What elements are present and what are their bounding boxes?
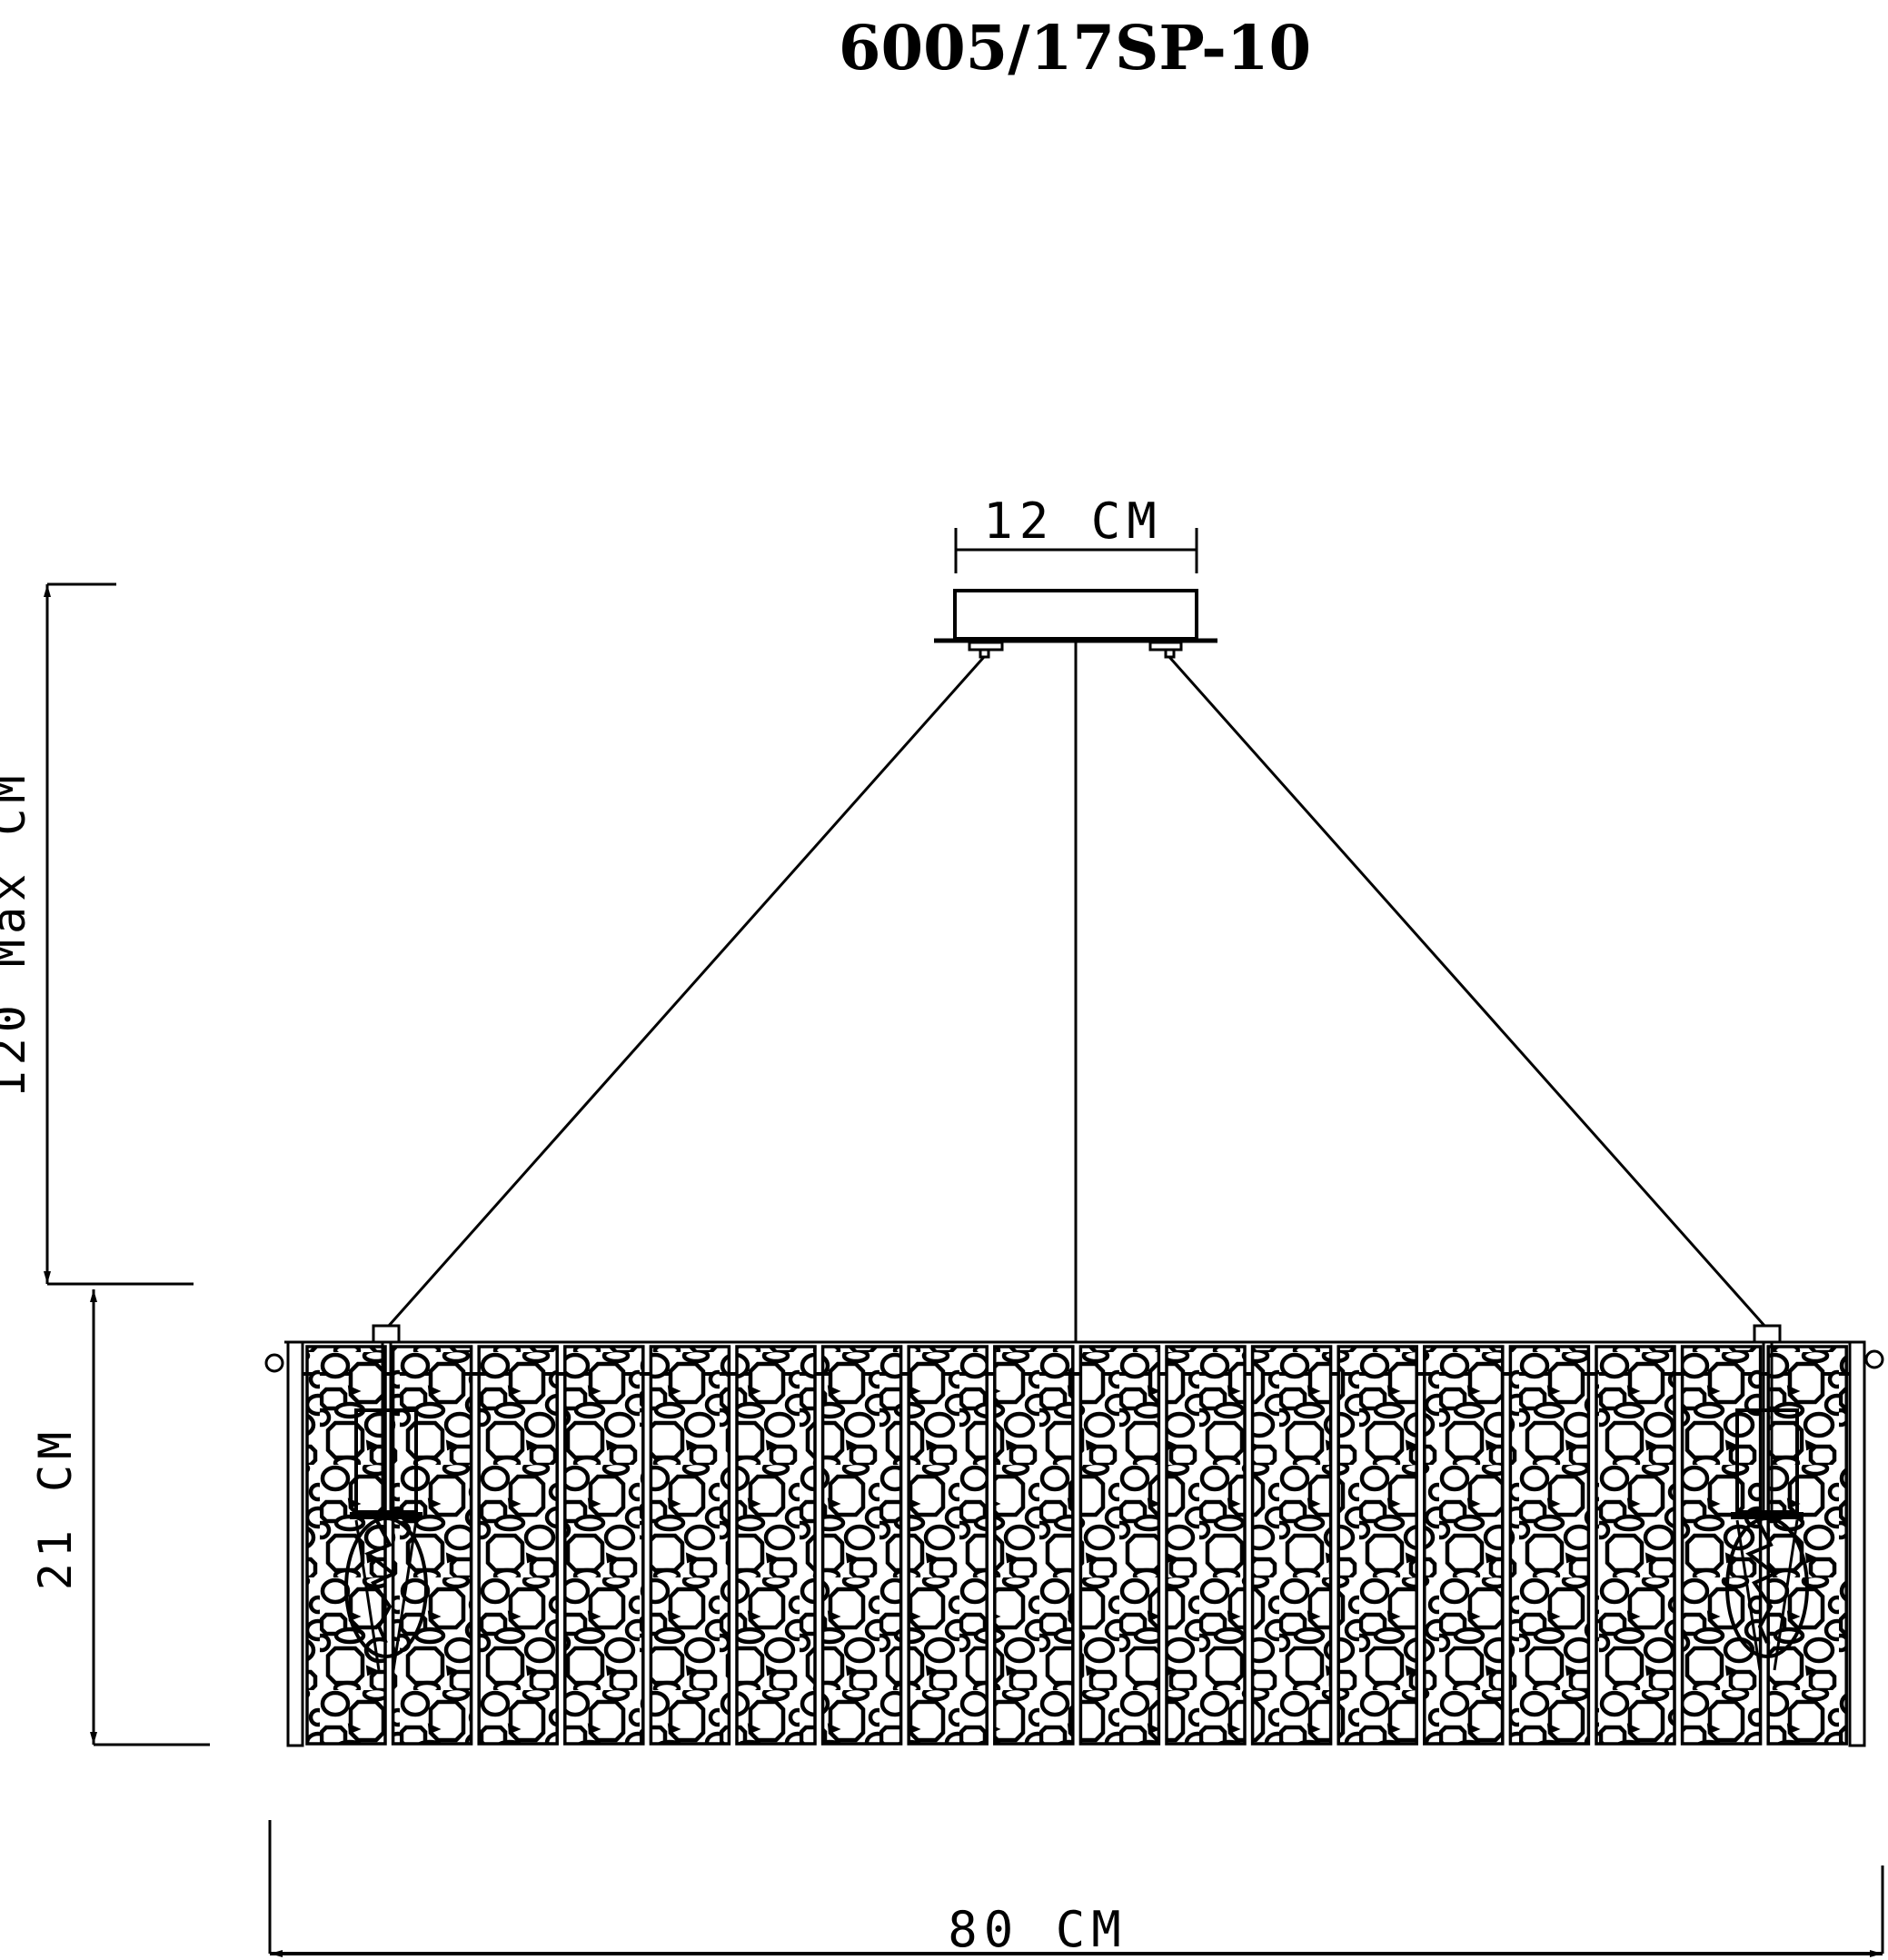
canopy-body [955, 591, 1197, 639]
dimension-label-drop-max: 120 Max CM [0, 770, 35, 1098]
mesh-panel [1080, 1347, 1158, 1744]
mesh-panel [1425, 1347, 1503, 1744]
mesh-panel [1768, 1347, 1846, 1744]
mesh-panel [823, 1347, 901, 1744]
dimension-arrow [44, 1271, 51, 1284]
dimension-label-body-width: 80 CM [948, 1901, 1128, 1958]
mesh-panel [565, 1347, 643, 1744]
mesh-panel [1167, 1347, 1245, 1744]
dimension-arrow [90, 1289, 97, 1302]
lamp-body [266, 1326, 1883, 1746]
dimension-label-canopy-width: 12 CM [983, 492, 1163, 550]
panel-row [307, 1347, 1846, 1744]
dimension-body-height [90, 1289, 210, 1745]
mesh-panel [307, 1347, 385, 1744]
dimension-arrow [1870, 1950, 1883, 1957]
suspension-wire-right [1169, 657, 1765, 1327]
canopy-hook [980, 650, 989, 657]
mesh-panel [1510, 1347, 1588, 1744]
mesh-panel [909, 1347, 987, 1744]
suspension-wires [388, 641, 1765, 1342]
mesh-panel [1253, 1347, 1331, 1744]
mesh-panel [1683, 1347, 1761, 1744]
canopy-hook [1166, 650, 1174, 657]
dimension-arrow [270, 1950, 283, 1957]
dimension-arrow [90, 1732, 97, 1745]
mesh-panel [479, 1347, 557, 1744]
mesh-panel [1596, 1347, 1674, 1744]
body-knob-left [266, 1355, 283, 1371]
dimension-label-body-height: 21 CM [29, 1427, 82, 1591]
dimension-arrow [44, 584, 51, 597]
body-end-bar-left [288, 1342, 303, 1746]
diagram-canvas: 6005/17SP-10 12 CM 120 Max CM 21 CM [0, 0, 1888, 1960]
mesh-panel [737, 1347, 815, 1744]
mesh-panel [995, 1347, 1073, 1744]
mesh-panel [393, 1347, 472, 1744]
body-end-bar-right [1850, 1342, 1864, 1746]
suspension-wire-left [388, 657, 984, 1327]
model-number: 6005/17SP-10 [839, 12, 1311, 84]
mesh-panel [651, 1347, 729, 1744]
mesh-panel [1338, 1347, 1416, 1744]
body-knob-right [1866, 1351, 1883, 1368]
dimension-drop-max [44, 584, 194, 1284]
